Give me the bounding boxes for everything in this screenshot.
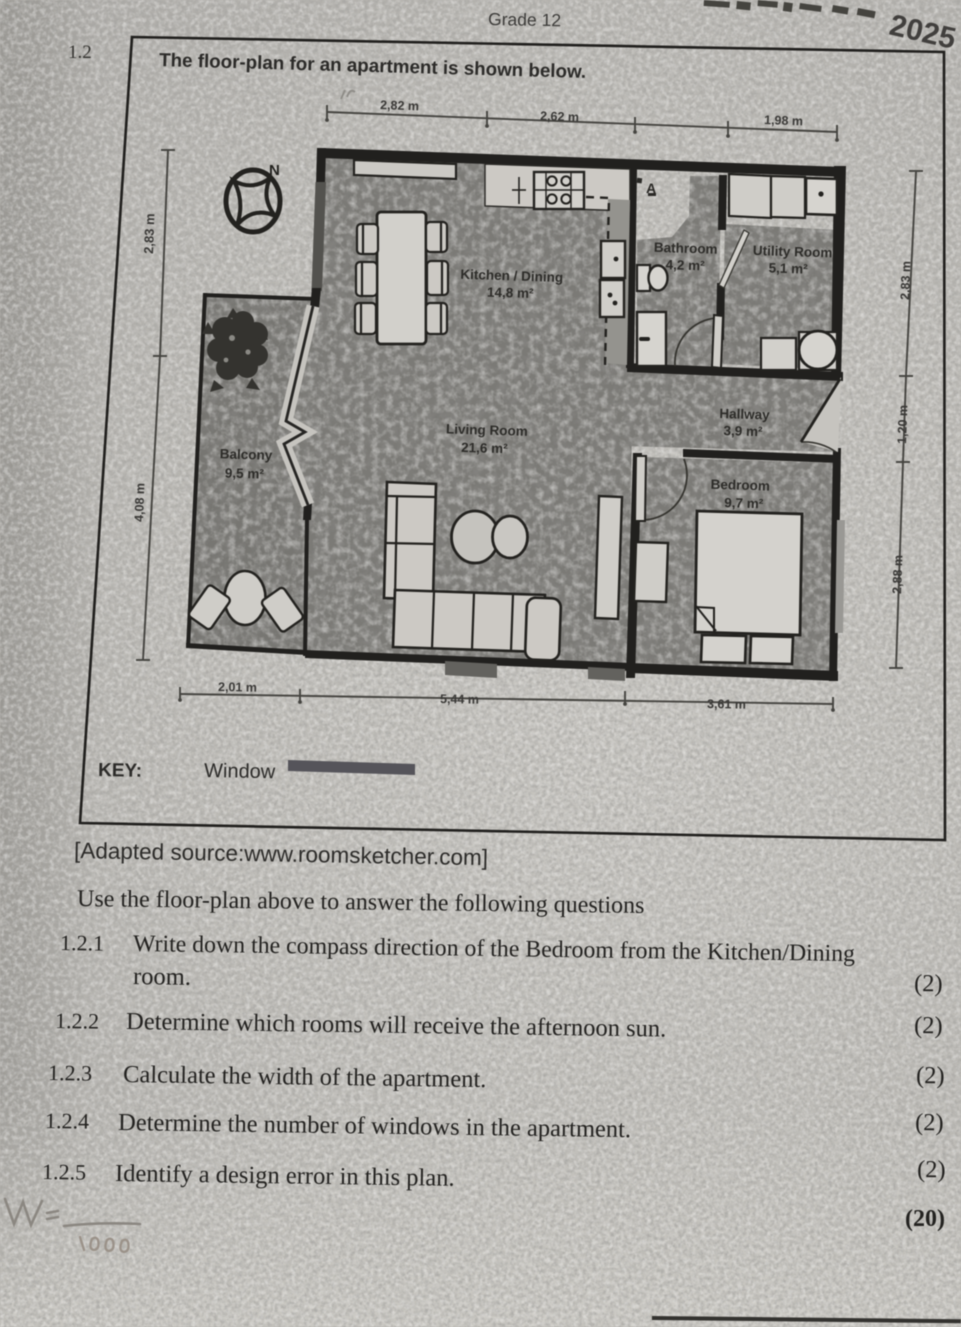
svg-text:(20): (20) <box>905 1206 945 1232</box>
svg-text:2,82 m: 2,82 m <box>380 98 419 113</box>
svg-text:room.: room. <box>133 963 191 991</box>
svg-text:4,08 m: 4,08 m <box>132 483 147 522</box>
svg-text:1.2.1: 1.2.1 <box>60 930 104 956</box>
svg-text:3,9 m²: 3,9 m² <box>723 423 763 439</box>
svg-text:1,20 m: 1,20 m <box>895 405 910 444</box>
svg-text:Window: Window <box>204 760 276 783</box>
svg-text:1,98 m: 1,98 m <box>764 113 803 128</box>
svg-text:4,2 m²: 4,2 m² <box>665 257 705 273</box>
svg-text:1.2.5: 1.2.5 <box>42 1159 86 1185</box>
svg-text:2,83 m: 2,83 m <box>898 261 913 300</box>
svg-text:(2): (2) <box>915 1109 944 1136</box>
svg-text:21,6 m²: 21,6 m² <box>461 440 508 456</box>
svg-text:(2): (2) <box>914 1012 943 1039</box>
svg-text:Bathroom: Bathroom <box>654 240 718 257</box>
svg-text:(2): (2) <box>914 970 943 997</box>
svg-text:3,61 m: 3,61 m <box>707 697 746 712</box>
svg-text:5,44 m: 5,44 m <box>440 692 479 707</box>
svg-text:(2): (2) <box>917 1156 946 1183</box>
svg-text:1.2.2: 1.2.2 <box>55 1008 99 1034</box>
svg-text:2,62 m: 2,62 m <box>540 109 579 124</box>
svg-text:2,01 m: 2,01 m <box>218 680 257 695</box>
svg-text:Living Room: Living Room <box>446 421 528 439</box>
svg-text:KEY:: KEY: <box>98 760 142 782</box>
svg-text:1.2: 1.2 <box>68 42 92 63</box>
svg-text:5,1 m²: 5,1 m² <box>768 260 808 276</box>
svg-text:9,7 m²: 9,7 m² <box>724 495 764 511</box>
svg-text:Bedroom: Bedroom <box>710 477 770 494</box>
svg-text:N: N <box>269 162 280 179</box>
svg-text:9,5 m²: 9,5 m² <box>225 465 265 481</box>
svg-text:1.2.3: 1.2.3 <box>48 1060 92 1086</box>
svg-text:2,83 m: 2,83 m <box>141 213 157 254</box>
svg-text:Utility Room: Utility Room <box>753 243 833 260</box>
svg-text:14,8 m²: 14,8 m² <box>487 285 534 301</box>
svg-text:Grade 12: Grade 12 <box>488 9 561 30</box>
svg-text:Balcony: Balcony <box>220 446 273 463</box>
svg-text:2,88 m: 2,88 m <box>890 555 905 594</box>
svg-text:(2): (2) <box>916 1062 945 1089</box>
svg-text:Identify a design error in thi: Identify a design error in this plan. <box>115 1160 455 1192</box>
svg-text:Hallway: Hallway <box>719 406 770 423</box>
svg-text:Calculate the width of the apa: Calculate the width of the apartment. <box>123 1061 487 1093</box>
svg-text:1.2.4: 1.2.4 <box>45 1108 89 1134</box>
